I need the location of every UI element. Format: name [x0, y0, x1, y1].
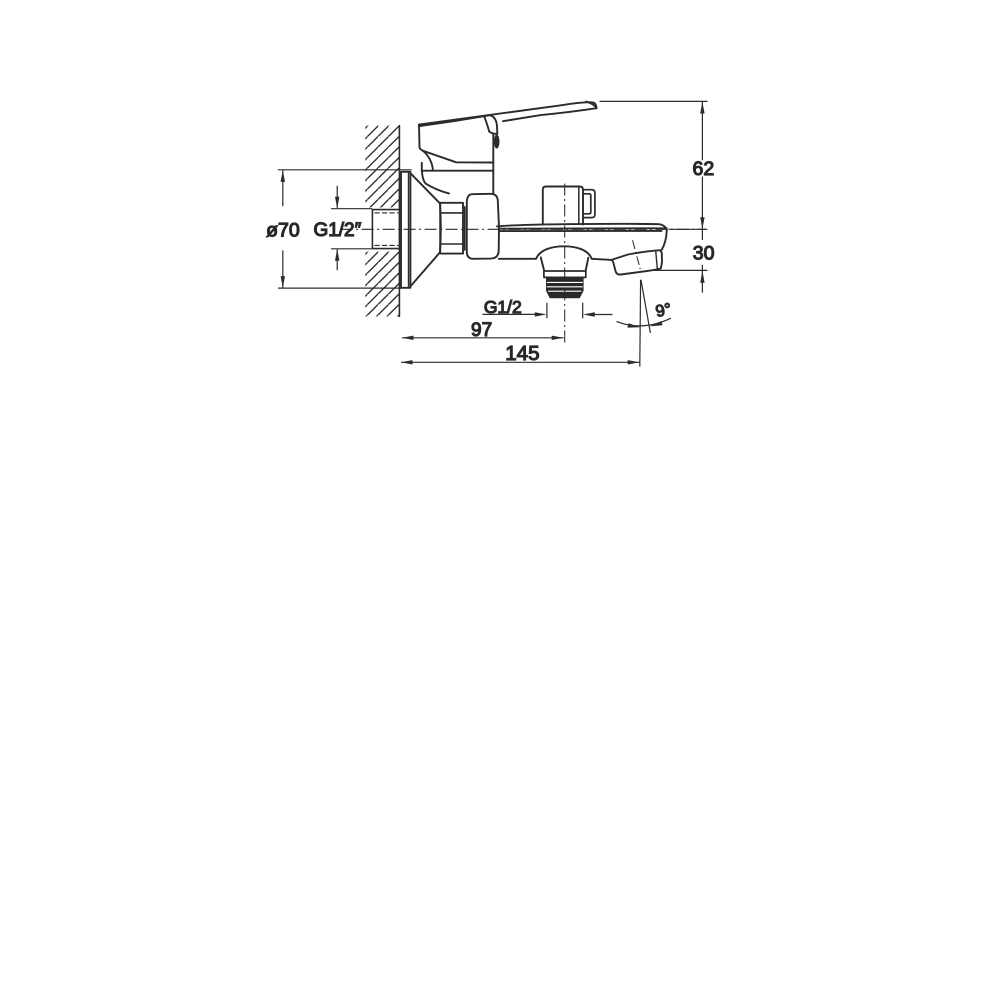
svg-text:G1/2″: G1/2″ [313, 220, 361, 241]
svg-text:ø70: ø70 [266, 219, 300, 241]
svg-text:145: 145 [505, 342, 539, 365]
svg-text:97: 97 [471, 320, 492, 341]
svg-text:30: 30 [693, 242, 715, 264]
svg-text:62: 62 [693, 158, 715, 180]
